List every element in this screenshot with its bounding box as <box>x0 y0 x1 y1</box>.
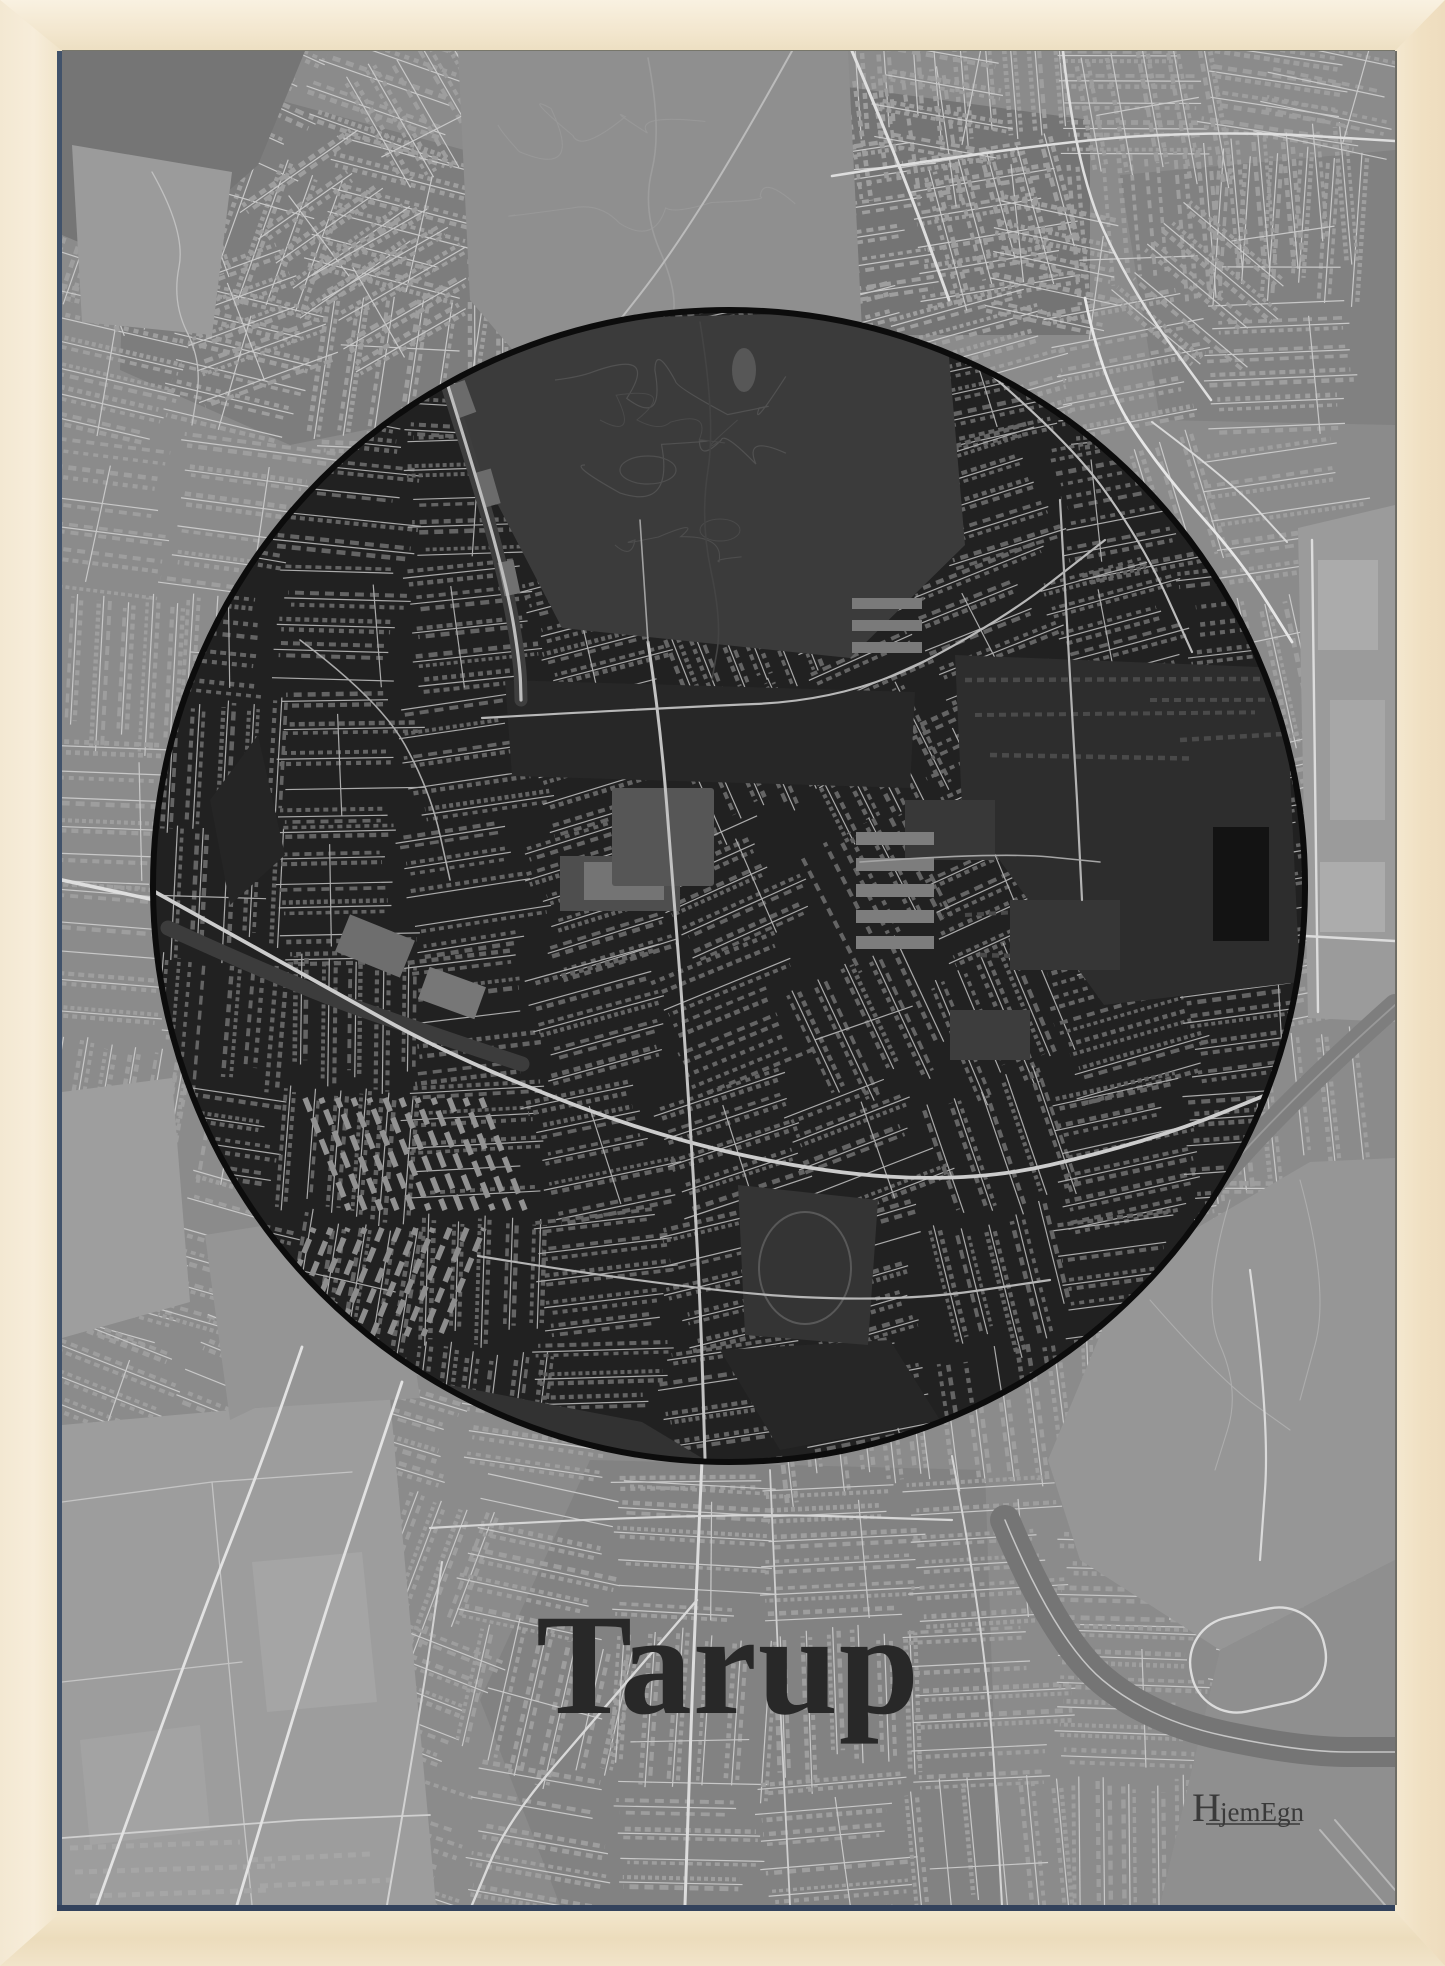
svg-text:jemEgn: jemEgn <box>1219 1797 1304 1827</box>
svg-text:Tarup: Tarup <box>536 1586 920 1745</box>
